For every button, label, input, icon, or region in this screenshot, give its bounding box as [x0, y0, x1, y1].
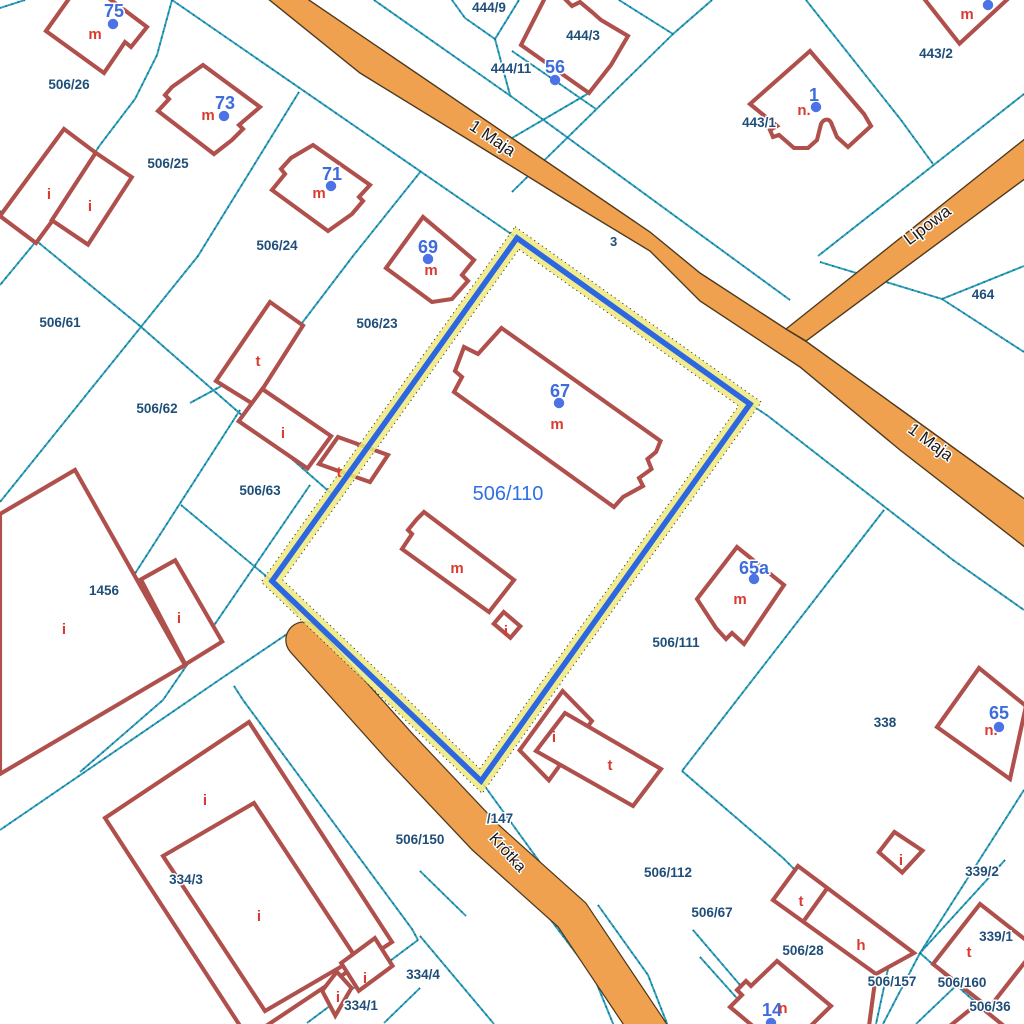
svg-text:i: i [336, 989, 340, 1006]
svg-text:506/157: 506/157 [868, 974, 917, 989]
svg-text:t: t [967, 944, 972, 961]
svg-text:334/3: 334/3 [169, 872, 203, 887]
svg-text:i: i [363, 970, 367, 987]
svg-text:506/67: 506/67 [691, 905, 732, 920]
svg-text:73: 73 [215, 93, 235, 113]
svg-text:1456: 1456 [89, 583, 120, 598]
svg-text:506/24: 506/24 [256, 238, 298, 253]
svg-text:3: 3 [610, 234, 617, 249]
svg-text:506/26: 506/26 [48, 77, 90, 92]
svg-text:m: m [960, 6, 973, 23]
svg-text:i: i [504, 623, 508, 640]
svg-text:i: i [281, 425, 285, 442]
svg-text:/147: /147 [487, 811, 513, 826]
svg-text:444/11: 444/11 [491, 61, 532, 76]
svg-text:m: m [424, 262, 437, 279]
svg-text:m: m [550, 416, 563, 433]
svg-text:m: m [201, 107, 214, 124]
svg-text:h: h [856, 937, 865, 954]
svg-text:506/25: 506/25 [147, 156, 189, 171]
svg-text:m: m [312, 185, 325, 202]
svg-text:334/1: 334/1 [344, 998, 378, 1013]
svg-text:i: i [899, 852, 903, 869]
svg-text:506/28: 506/28 [782, 943, 824, 958]
svg-text:75: 75 [104, 1, 124, 21]
svg-text:m: m [88, 26, 101, 43]
svg-text:464: 464 [972, 287, 995, 302]
svg-text:m: m [450, 560, 463, 577]
svg-text:506/23: 506/23 [356, 316, 398, 331]
svg-text:339/2: 339/2 [965, 864, 999, 879]
svg-text:i: i [203, 792, 207, 809]
svg-text:i: i [177, 610, 181, 627]
svg-text:t: t [799, 893, 804, 910]
svg-text:338: 338 [874, 715, 897, 730]
svg-text:506/63: 506/63 [239, 483, 281, 498]
svg-text:506/111: 506/111 [652, 635, 700, 650]
svg-text:56: 56 [545, 57, 565, 77]
svg-text:n.: n. [984, 722, 997, 739]
svg-text:n.: n. [797, 102, 810, 119]
svg-text:m: m [733, 591, 746, 608]
svg-text:506/110: 506/110 [473, 483, 544, 505]
svg-text:i: i [257, 908, 261, 925]
svg-text:i: i [88, 198, 92, 215]
svg-text:t: t [337, 464, 342, 481]
svg-text:443/2: 443/2 [919, 46, 953, 61]
svg-text:t: t [256, 353, 261, 370]
svg-text:506/61: 506/61 [39, 315, 81, 330]
svg-text:i: i [552, 729, 556, 746]
svg-text:444/9: 444/9 [472, 0, 506, 15]
svg-text:506/112: 506/112 [644, 865, 692, 880]
svg-text:n: n [778, 1000, 787, 1017]
svg-text:444/3: 444/3 [566, 28, 600, 43]
svg-text:i: i [47, 186, 51, 203]
svg-text:i: i [62, 621, 66, 638]
svg-text:506/62: 506/62 [136, 401, 177, 416]
svg-text:443/1: 443/1 [742, 115, 776, 130]
svg-text:339/1: 339/1 [979, 929, 1013, 944]
svg-text:506/160: 506/160 [938, 975, 987, 990]
svg-text:t: t [608, 757, 613, 774]
svg-text:506/36: 506/36 [969, 999, 1011, 1014]
svg-text:65: 65 [989, 703, 1009, 723]
svg-text:506/150: 506/150 [396, 832, 445, 847]
svg-text:334/4: 334/4 [406, 967, 440, 982]
